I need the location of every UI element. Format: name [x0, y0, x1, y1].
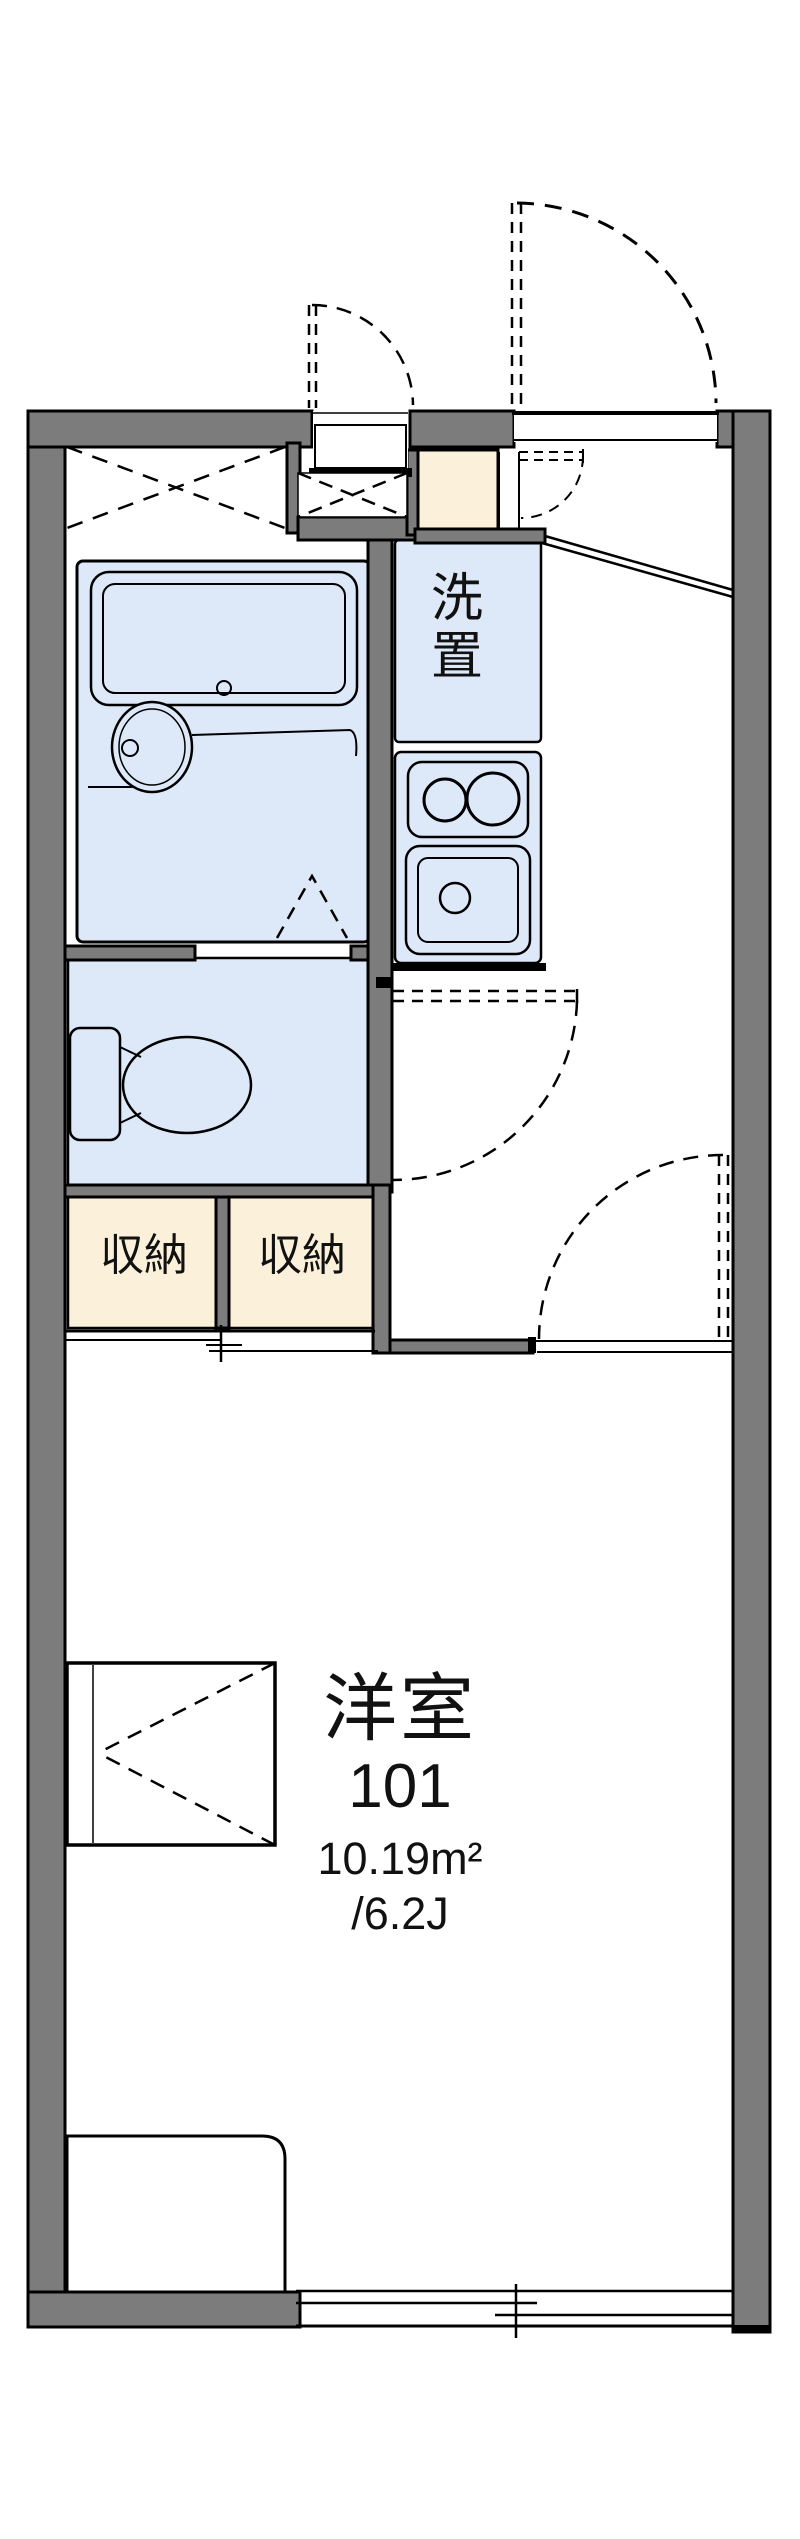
room-area-tatami: /6.2J	[255, 1891, 545, 1936]
room-area-sqm: 10.19m²	[255, 1836, 545, 1881]
balcony-window	[296, 2284, 770, 2338]
entry-storage-area	[418, 450, 498, 531]
upper-storage-x	[67, 447, 285, 528]
entry-small-door-swing	[519, 449, 583, 518]
entry-jamb-lines	[499, 452, 519, 530]
toilet-floor	[68, 958, 378, 1186]
service-door-recess	[309, 411, 412, 477]
washroom-door-swing	[393, 989, 577, 1180]
entry-step-line	[542, 536, 733, 597]
entrance-door-swing	[512, 203, 716, 409]
washbasin	[112, 702, 192, 792]
kitchen-unit	[392, 752, 546, 971]
side-window-unit	[67, 1663, 275, 1845]
room-type-label: 洋室	[255, 1672, 545, 1746]
small-storage-x	[298, 473, 407, 517]
floor-plan: 洗置 収納 収納 洋室 101 10.19m² /6.2J	[0, 0, 800, 2539]
washer-place-label: 洗置	[428, 570, 486, 686]
entrance-opening	[512, 411, 719, 442]
bed	[67, 2136, 285, 2292]
room-doorway	[533, 1341, 733, 1352]
service-door-swing	[309, 305, 413, 408]
room-info-block: 洋室 101 10.19m² /6.2J	[255, 1672, 545, 1936]
room-door-swing	[539, 1155, 728, 1339]
room-number: 101	[255, 1756, 545, 1818]
closet-right-label: 収納	[246, 1232, 358, 1280]
closet-sliding-doors	[65, 1325, 378, 1362]
closet-left-label: 収納	[88, 1232, 200, 1280]
